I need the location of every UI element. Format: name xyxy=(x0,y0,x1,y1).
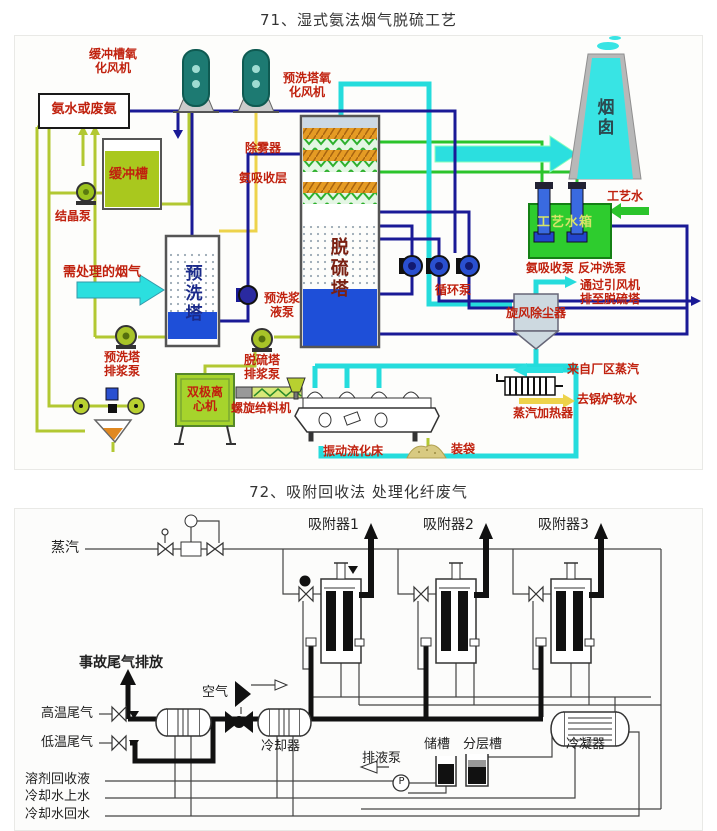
vibrating-bed-label: 振动流化床 xyxy=(323,445,383,459)
ammonia-layer-label: 氨吸收层 xyxy=(239,172,287,186)
adsorber2-label: 吸附器2 xyxy=(423,517,474,533)
adsorber-vessel-1 xyxy=(299,523,378,663)
hydrocyclone-assembly xyxy=(73,388,144,442)
ammonia-feed-label: 氨水或废氨 xyxy=(39,103,129,118)
bag-pile xyxy=(407,445,446,458)
bagging-label: 装袋 xyxy=(451,443,475,457)
separation-tank-label: 分层槽 xyxy=(463,738,502,753)
prewash-fan-label: 预洗塔氧 化风机 xyxy=(273,72,341,100)
circulation-pump-label: 循环泵 xyxy=(435,284,471,298)
steam-gauge-icon xyxy=(185,515,197,527)
flue-gas-label: 需处理的烟气 xyxy=(63,266,141,281)
cooler-label: 冷却器 xyxy=(261,740,300,755)
figure2-adsorption-diagram: 蒸汽 吸附器1 吸附器2 吸附器3 事故尾气排放 高温尾气 低温尾气 空气 冷却… xyxy=(14,508,703,831)
thick-arrowheads xyxy=(120,669,136,685)
accident-vent-label: 事故尾气排放 xyxy=(79,655,163,671)
adsorber1-label: 吸附器1 xyxy=(308,517,359,533)
via-fan-label: 通过引风机 排至脱硫塔 xyxy=(575,279,645,307)
absorb-pumps-label: 氨吸收泵 反冲洗泵 xyxy=(513,262,639,276)
drain-pump-label: 排液泵 xyxy=(362,752,401,767)
adsorber-vessel-2 xyxy=(414,523,493,663)
screw-feeder-label: 螺旋给料机 xyxy=(231,402,291,416)
plant-steam-label: 来自厂区蒸汽 xyxy=(567,363,639,377)
prewash-tower-label: 预洗塔 xyxy=(181,254,201,334)
cooling-supply-label: 冷却水上水 xyxy=(25,790,90,805)
crystal-pump-label: 结晶泵 xyxy=(55,210,91,224)
figure1-title: 71、湿式氨法烟气脱硫工艺 xyxy=(0,9,717,30)
cyclone-label: 旋风除尘器 xyxy=(503,307,569,321)
condenser-label: 冷凝器 xyxy=(566,738,605,753)
separation-tank-shape xyxy=(466,754,488,786)
low-temp-label: 低温尾气 xyxy=(41,736,93,751)
air-label: 空气 xyxy=(202,686,228,701)
process-water-label: 工艺水 xyxy=(607,190,643,204)
desulf-drain-pump-label: 脱硫塔 排浆泵 xyxy=(239,354,285,382)
steam-label: 蒸汽 xyxy=(51,540,79,556)
process-water-tank-label: 工艺水箱 xyxy=(537,216,593,231)
figure1-desulfurization-diagram: 缓冲槽氧 化风机 氨水或废氨 预洗塔氧 化风机 缓冲槽 结晶泵 除雾器 氨吸收层… xyxy=(14,35,703,470)
steam-heater-icon xyxy=(497,374,563,395)
high-temp-label: 高温尾气 xyxy=(41,707,93,722)
adsorber3-label: 吸附器3 xyxy=(538,517,589,533)
crystal-pump-icon xyxy=(76,183,96,205)
centrifuge-label: 双极离 心机 xyxy=(183,386,227,414)
storage-tank-shape xyxy=(436,756,456,786)
blower-icon xyxy=(225,711,253,733)
storage-tank-label: 储槽 xyxy=(424,738,450,753)
prewash-drain-pump-icon xyxy=(116,326,136,349)
buffer-oxidation-fan-vessel xyxy=(173,50,219,112)
cyclone-dust-collector xyxy=(514,294,558,349)
buffer-fan-label: 缓冲槽氧 化风机 xyxy=(77,48,149,76)
desulf-tower-label: 脱硫塔 xyxy=(327,230,348,306)
prewash-drain-pump-label: 预洗塔 排浆泵 xyxy=(99,351,145,379)
steam-controller-box xyxy=(181,542,201,556)
adsorber-vessel-3 xyxy=(529,523,608,663)
prewash-slurry-pump-icon xyxy=(236,286,257,304)
prewash-slurry-pump-label: 预洗浆 液泵 xyxy=(260,292,304,320)
cooling-return-label: 冷却水回水 xyxy=(25,808,90,823)
chimney-label: 烟囱 xyxy=(593,98,613,154)
desulf-drain-pump-icon xyxy=(252,329,272,352)
process-water-arrow xyxy=(609,203,649,219)
circulation-pumps xyxy=(399,256,479,276)
steam-valve-2 xyxy=(207,543,223,555)
pump-p-symbol: P xyxy=(395,776,408,788)
buffer-tank-label: 缓冲槽 xyxy=(109,168,148,183)
air-inlet-icon xyxy=(235,680,287,707)
steam-heater-label: 蒸汽加热器 xyxy=(513,407,573,421)
cooler-1 xyxy=(156,709,211,736)
demister-label: 除雾器 xyxy=(245,142,281,156)
boiler-water-label: 去锅炉软水 xyxy=(577,393,637,407)
vibrating-fluidized-bed xyxy=(287,378,439,441)
cooler-2 xyxy=(258,709,311,736)
solvent-recovery-label: 溶剂回收液 xyxy=(25,773,90,788)
figure2-title: 72、吸附回收法 处理化纤废气 xyxy=(0,481,717,502)
